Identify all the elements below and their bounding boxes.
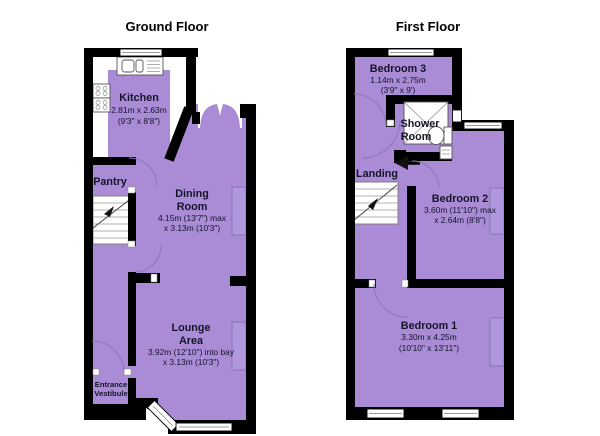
bedroom1-window-right bbox=[442, 409, 479, 418]
floorplan-drawing: Ground Floor Kitchen 2.81m x 2.63m (9'3"… bbox=[0, 0, 600, 436]
lounge-alcove bbox=[232, 322, 246, 370]
stairs-icon bbox=[93, 196, 134, 244]
bedroom3-dims-metric: 1.14m x 2.75m bbox=[370, 75, 425, 85]
bedroom3-dims-imperial: (3'9" x 9') bbox=[381, 85, 416, 95]
landing-name: Landing bbox=[356, 168, 398, 180]
stairs-icon bbox=[352, 182, 398, 224]
lounge-name-2: Area bbox=[179, 335, 204, 347]
ground-floor-title: Ground Floor bbox=[125, 19, 208, 34]
bedroom2-name: Bedroom 2 bbox=[432, 193, 488, 205]
bedroom1-label: Bedroom 1 3.30m x 4.25m (10'10" x 13'11"… bbox=[399, 320, 459, 353]
shower-room-name-2: Room bbox=[401, 131, 432, 143]
ground-floor-plan: Ground Floor Kitchen 2.81m x 2.63m (9'3"… bbox=[84, 19, 256, 434]
door-jamb bbox=[128, 241, 135, 247]
bedroom3-name: Bedroom 3 bbox=[370, 63, 426, 75]
first-floor-title: First Floor bbox=[396, 19, 460, 34]
dining-alcove bbox=[232, 187, 246, 235]
bedroom3-window bbox=[388, 49, 434, 56]
bedroom1-window-left bbox=[367, 409, 404, 418]
bedroom1-dims-metric: 3.30m x 4.25m bbox=[401, 332, 456, 342]
door-jamb bbox=[124, 369, 131, 375]
lounge-dims-1: 3.92m (12'10") into bay bbox=[148, 347, 235, 357]
bedroom1-name: Bedroom 1 bbox=[401, 320, 457, 332]
dining-name-1: Dining bbox=[175, 188, 209, 200]
kitchen-name: Kitchen bbox=[119, 92, 159, 104]
shower-room-window bbox=[453, 110, 462, 122]
lounge-dims-2: x 3.13m (10'3") bbox=[163, 357, 219, 367]
bedroom1-dims-imperial: (10'10" x 13'11") bbox=[399, 343, 459, 353]
floorplan-page: Ground Floor Kitchen 2.81m x 2.63m (9'3"… bbox=[0, 0, 600, 436]
shower-room-name-1: Shower bbox=[401, 118, 441, 130]
kitchen-window bbox=[120, 49, 162, 56]
kitchen-dims-metric: 2.81m x 2.63m bbox=[111, 105, 166, 115]
bedroom2-window bbox=[464, 122, 502, 129]
bedroom2-dims-1: 3.60m (11'10") max bbox=[424, 205, 497, 215]
vestibule-name-1: Entrance bbox=[95, 380, 128, 389]
basin-icon bbox=[440, 146, 452, 159]
bedroom1-alcove bbox=[490, 318, 504, 366]
hob-icon bbox=[93, 84, 110, 112]
kitchen-dims-imperial: (9'3" x 8'8") bbox=[118, 116, 160, 126]
first-floor-plan: First Floor Bedroom 3 1.14m x 2.75m (3'9… bbox=[346, 19, 514, 420]
lounge-name-1: Lounge bbox=[172, 322, 211, 334]
pantry-name: Pantry bbox=[93, 176, 127, 188]
door-jamb bbox=[93, 369, 99, 375]
dining-dims-1: 4.15m (13'7") max bbox=[158, 213, 227, 223]
vestibule-label: Entrance Vestibule bbox=[94, 380, 127, 398]
sink-icon bbox=[117, 57, 163, 75]
vestibule-name-2: Vestibule bbox=[94, 389, 127, 398]
door-jamb bbox=[387, 120, 394, 126]
door-jamb bbox=[128, 187, 135, 193]
kitchen-label: Kitchen 2.81m x 2.63m (9'3" x 8'8") bbox=[111, 92, 166, 126]
bedroom2-dims-2: x 2.64m (8'8") bbox=[434, 215, 486, 225]
french-doors-icon bbox=[198, 104, 242, 134]
dining-dims-2: x 3.13m (10'3") bbox=[164, 223, 220, 233]
door-jamb bbox=[151, 274, 157, 282]
door-jamb bbox=[402, 280, 408, 287]
dining-name-2: Room bbox=[177, 201, 208, 213]
